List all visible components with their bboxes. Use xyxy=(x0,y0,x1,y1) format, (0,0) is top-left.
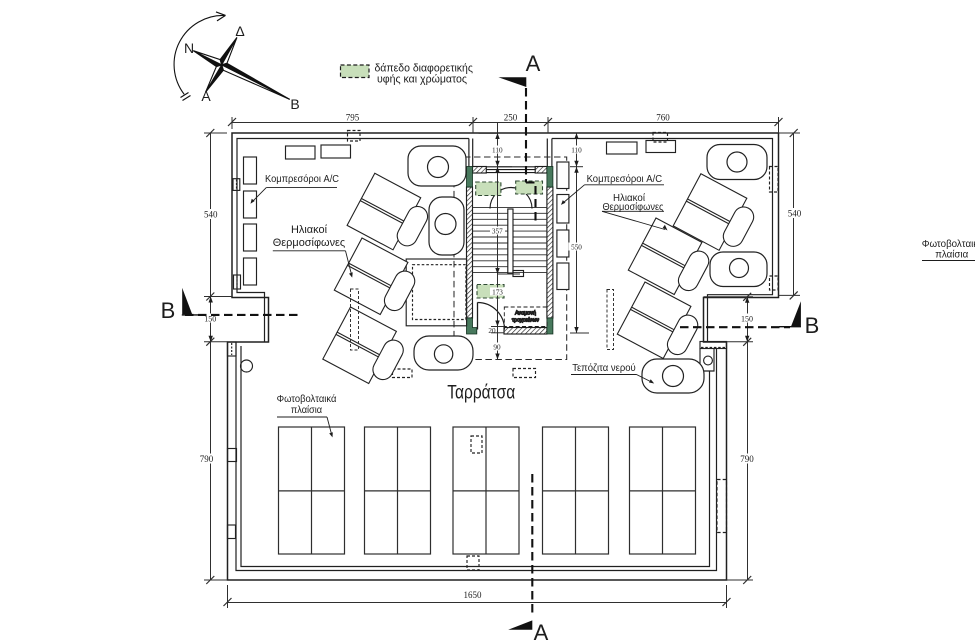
svg-text:1650: 1650 xyxy=(464,590,483,600)
svg-text:A: A xyxy=(201,88,211,104)
svg-text:173: 173 xyxy=(492,289,503,297)
svg-text:Αναμονή: Αναμονή xyxy=(515,310,536,317)
svg-text:B: B xyxy=(290,96,299,112)
svg-text:Δ: Δ xyxy=(235,23,244,39)
svg-text:357: 357 xyxy=(492,228,503,236)
svg-text:20: 20 xyxy=(488,327,496,335)
svg-text:795: 795 xyxy=(346,113,360,123)
svg-text:Τεπόζιτα νερού: Τεπόζιτα νερού xyxy=(572,362,636,374)
svg-text:τροχοκίνων: τροχοκίνων xyxy=(512,318,540,324)
svg-text:150: 150 xyxy=(741,315,753,324)
svg-text:Ταρράτσα: Ταρράτσα xyxy=(447,383,515,404)
svg-text:B: B xyxy=(161,298,176,323)
svg-text:N: N xyxy=(184,40,194,56)
svg-text:540: 540 xyxy=(204,210,218,220)
svg-text:A: A xyxy=(534,620,549,641)
svg-text:Θερμοσίφωνες: Θερμοσίφωνες xyxy=(273,237,345,249)
svg-text:790: 790 xyxy=(740,454,754,464)
svg-text:πλαίσια: πλαίσια xyxy=(291,404,322,416)
svg-text:90: 90 xyxy=(493,344,501,352)
svg-text:110: 110 xyxy=(492,147,503,155)
svg-text:πλαίσια: πλαίσια xyxy=(935,249,968,261)
svg-text:Κομπρεσόροι A/C: Κομπρεσόροι A/C xyxy=(265,173,340,185)
svg-text:Ηλιακοί: Ηλιακοί xyxy=(291,224,328,236)
svg-text:B: B xyxy=(805,313,820,338)
svg-text:Κομπρεσόροι A/C: Κομπρεσόροι A/C xyxy=(587,173,663,185)
svg-text:Φωτοβολταικά: Φωτοβολταικά xyxy=(277,393,337,405)
svg-text:250: 250 xyxy=(504,113,518,123)
svg-text:550: 550 xyxy=(571,244,582,252)
svg-text:540: 540 xyxy=(788,209,802,219)
svg-text:760: 760 xyxy=(656,113,670,123)
svg-text:υφής και χρώματος: υφής και χρώματος xyxy=(377,73,468,85)
svg-text:110: 110 xyxy=(571,147,582,155)
svg-text:Φωτοβολταικά: Φωτοβολταικά xyxy=(922,238,975,250)
svg-text:A: A xyxy=(526,51,541,76)
svg-text:790: 790 xyxy=(200,454,214,464)
